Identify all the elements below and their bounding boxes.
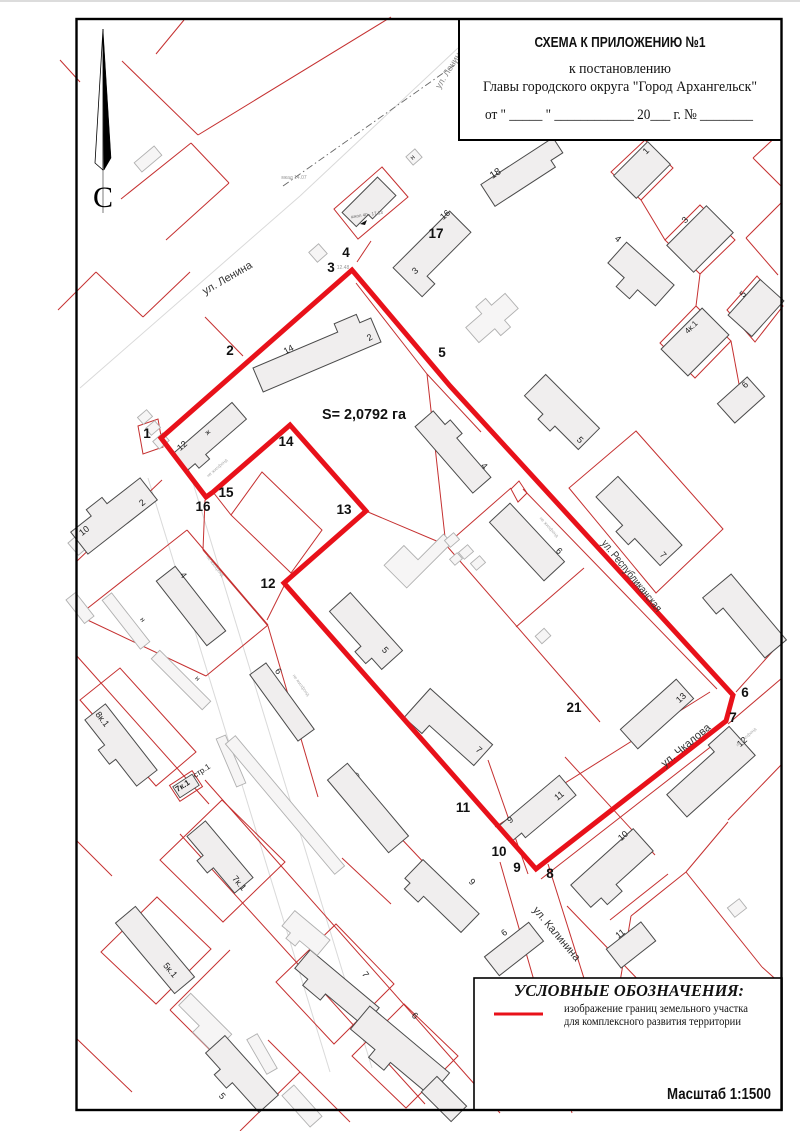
svg-text:от " _____ " ____________ 20__: от " _____ " ____________ 20___ г. № ___… bbox=[485, 107, 753, 123]
svg-text:3: 3 bbox=[327, 260, 335, 275]
svg-text:4: 4 bbox=[342, 245, 350, 260]
svg-text:С: С bbox=[93, 181, 113, 214]
svg-text:СХЕМА К ПРИЛОЖЕНИЮ №1: СХЕМА К ПРИЛОЖЕНИЮ №1 bbox=[535, 34, 706, 51]
svg-text:10: 10 bbox=[491, 844, 506, 859]
svg-text:УСЛОВНЫЕ ОБОЗНАЧЕНИЯ:: УСЛОВНЫЕ ОБОЗНАЧЕНИЯ: bbox=[514, 981, 744, 1000]
svg-text:17: 17 bbox=[428, 226, 443, 241]
svg-text:мкад 14.07: мкад 14.07 bbox=[281, 175, 307, 181]
svg-text:12.48: 12.48 bbox=[337, 265, 350, 271]
svg-text:6: 6 bbox=[741, 685, 749, 700]
svg-text:к постановлению: к постановлению bbox=[569, 61, 671, 77]
svg-text:21: 21 bbox=[566, 700, 582, 715]
svg-text:11: 11 bbox=[456, 800, 471, 815]
svg-text:12: 12 bbox=[260, 576, 275, 591]
svg-text:8: 8 bbox=[546, 866, 554, 881]
svg-text:для комплексного развития терр: для комплексного развития территории bbox=[564, 1016, 741, 1028]
svg-text:13: 13 bbox=[336, 502, 352, 517]
svg-text:5: 5 bbox=[438, 345, 446, 360]
svg-text:2: 2 bbox=[226, 343, 234, 358]
svg-text:1: 1 bbox=[143, 426, 151, 441]
svg-text:S= 2,0792 га: S= 2,0792 га bbox=[322, 406, 407, 423]
svg-text:7: 7 bbox=[729, 710, 737, 725]
svg-text:изображение границ земельного: изображение границ земельного участка bbox=[564, 1003, 748, 1015]
svg-text:15: 15 bbox=[218, 485, 234, 500]
svg-text:14: 14 bbox=[278, 434, 294, 449]
svg-text:16: 16 bbox=[195, 499, 211, 514]
svg-text:9: 9 bbox=[513, 860, 521, 875]
svg-text:Главы городского округа "Город: Главы городского округа "Город Архангель… bbox=[483, 79, 757, 95]
svg-text:Масштаб 1:1500: Масштаб 1:1500 bbox=[667, 1086, 771, 1103]
